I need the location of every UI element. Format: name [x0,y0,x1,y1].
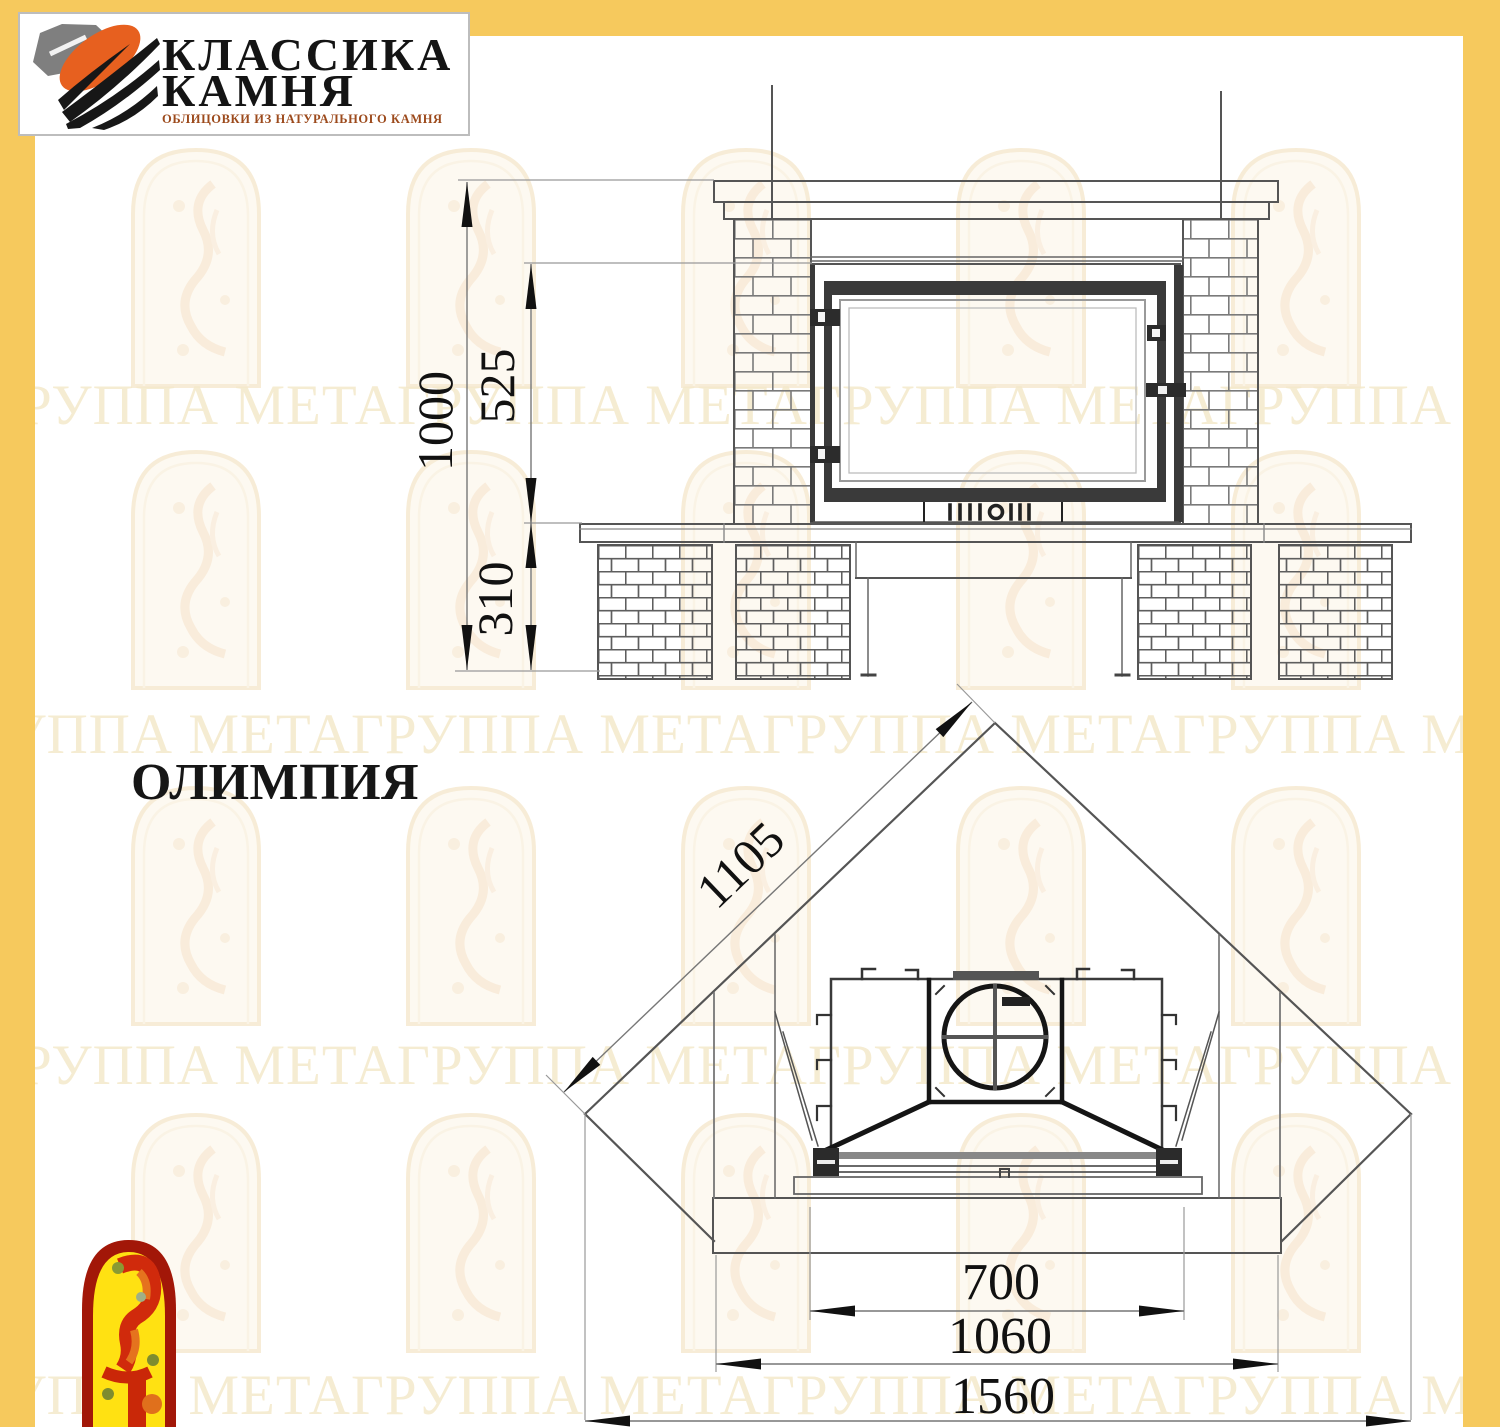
svg-text:1000: 1000 [407,371,463,471]
svg-text:КАМНЯ: КАМНЯ [162,65,356,116]
svg-text:310: 310 [467,562,523,637]
svg-text:1060: 1060 [948,1308,1052,1365]
svg-text:525: 525 [469,349,525,424]
svg-text:700: 700 [962,1254,1040,1311]
svg-text:1560: 1560 [951,1368,1055,1425]
svg-text:ОБЛИЦОВКИ ИЗ НАТУРАЛЬНОГО КАМН: ОБЛИЦОВКИ ИЗ НАТУРАЛЬНОГО КАМНЯ [162,112,443,126]
svg-text:ГРУППА МЕТАГРУППА МЕТАГРУППА М: ГРУППА МЕТАГРУППА МЕТАГРУППА МЕТАГРУППА … [0,1364,1500,1427]
svg-text:ОЛИМПИЯ: ОЛИМПИЯ [131,754,419,811]
svg-text:ГРУППА МЕТАГРУППА МЕТАГРУППА М: ГРУППА МЕТАГРУППА МЕТАГРУППА МЕТАГРУППА … [0,1034,1500,1097]
